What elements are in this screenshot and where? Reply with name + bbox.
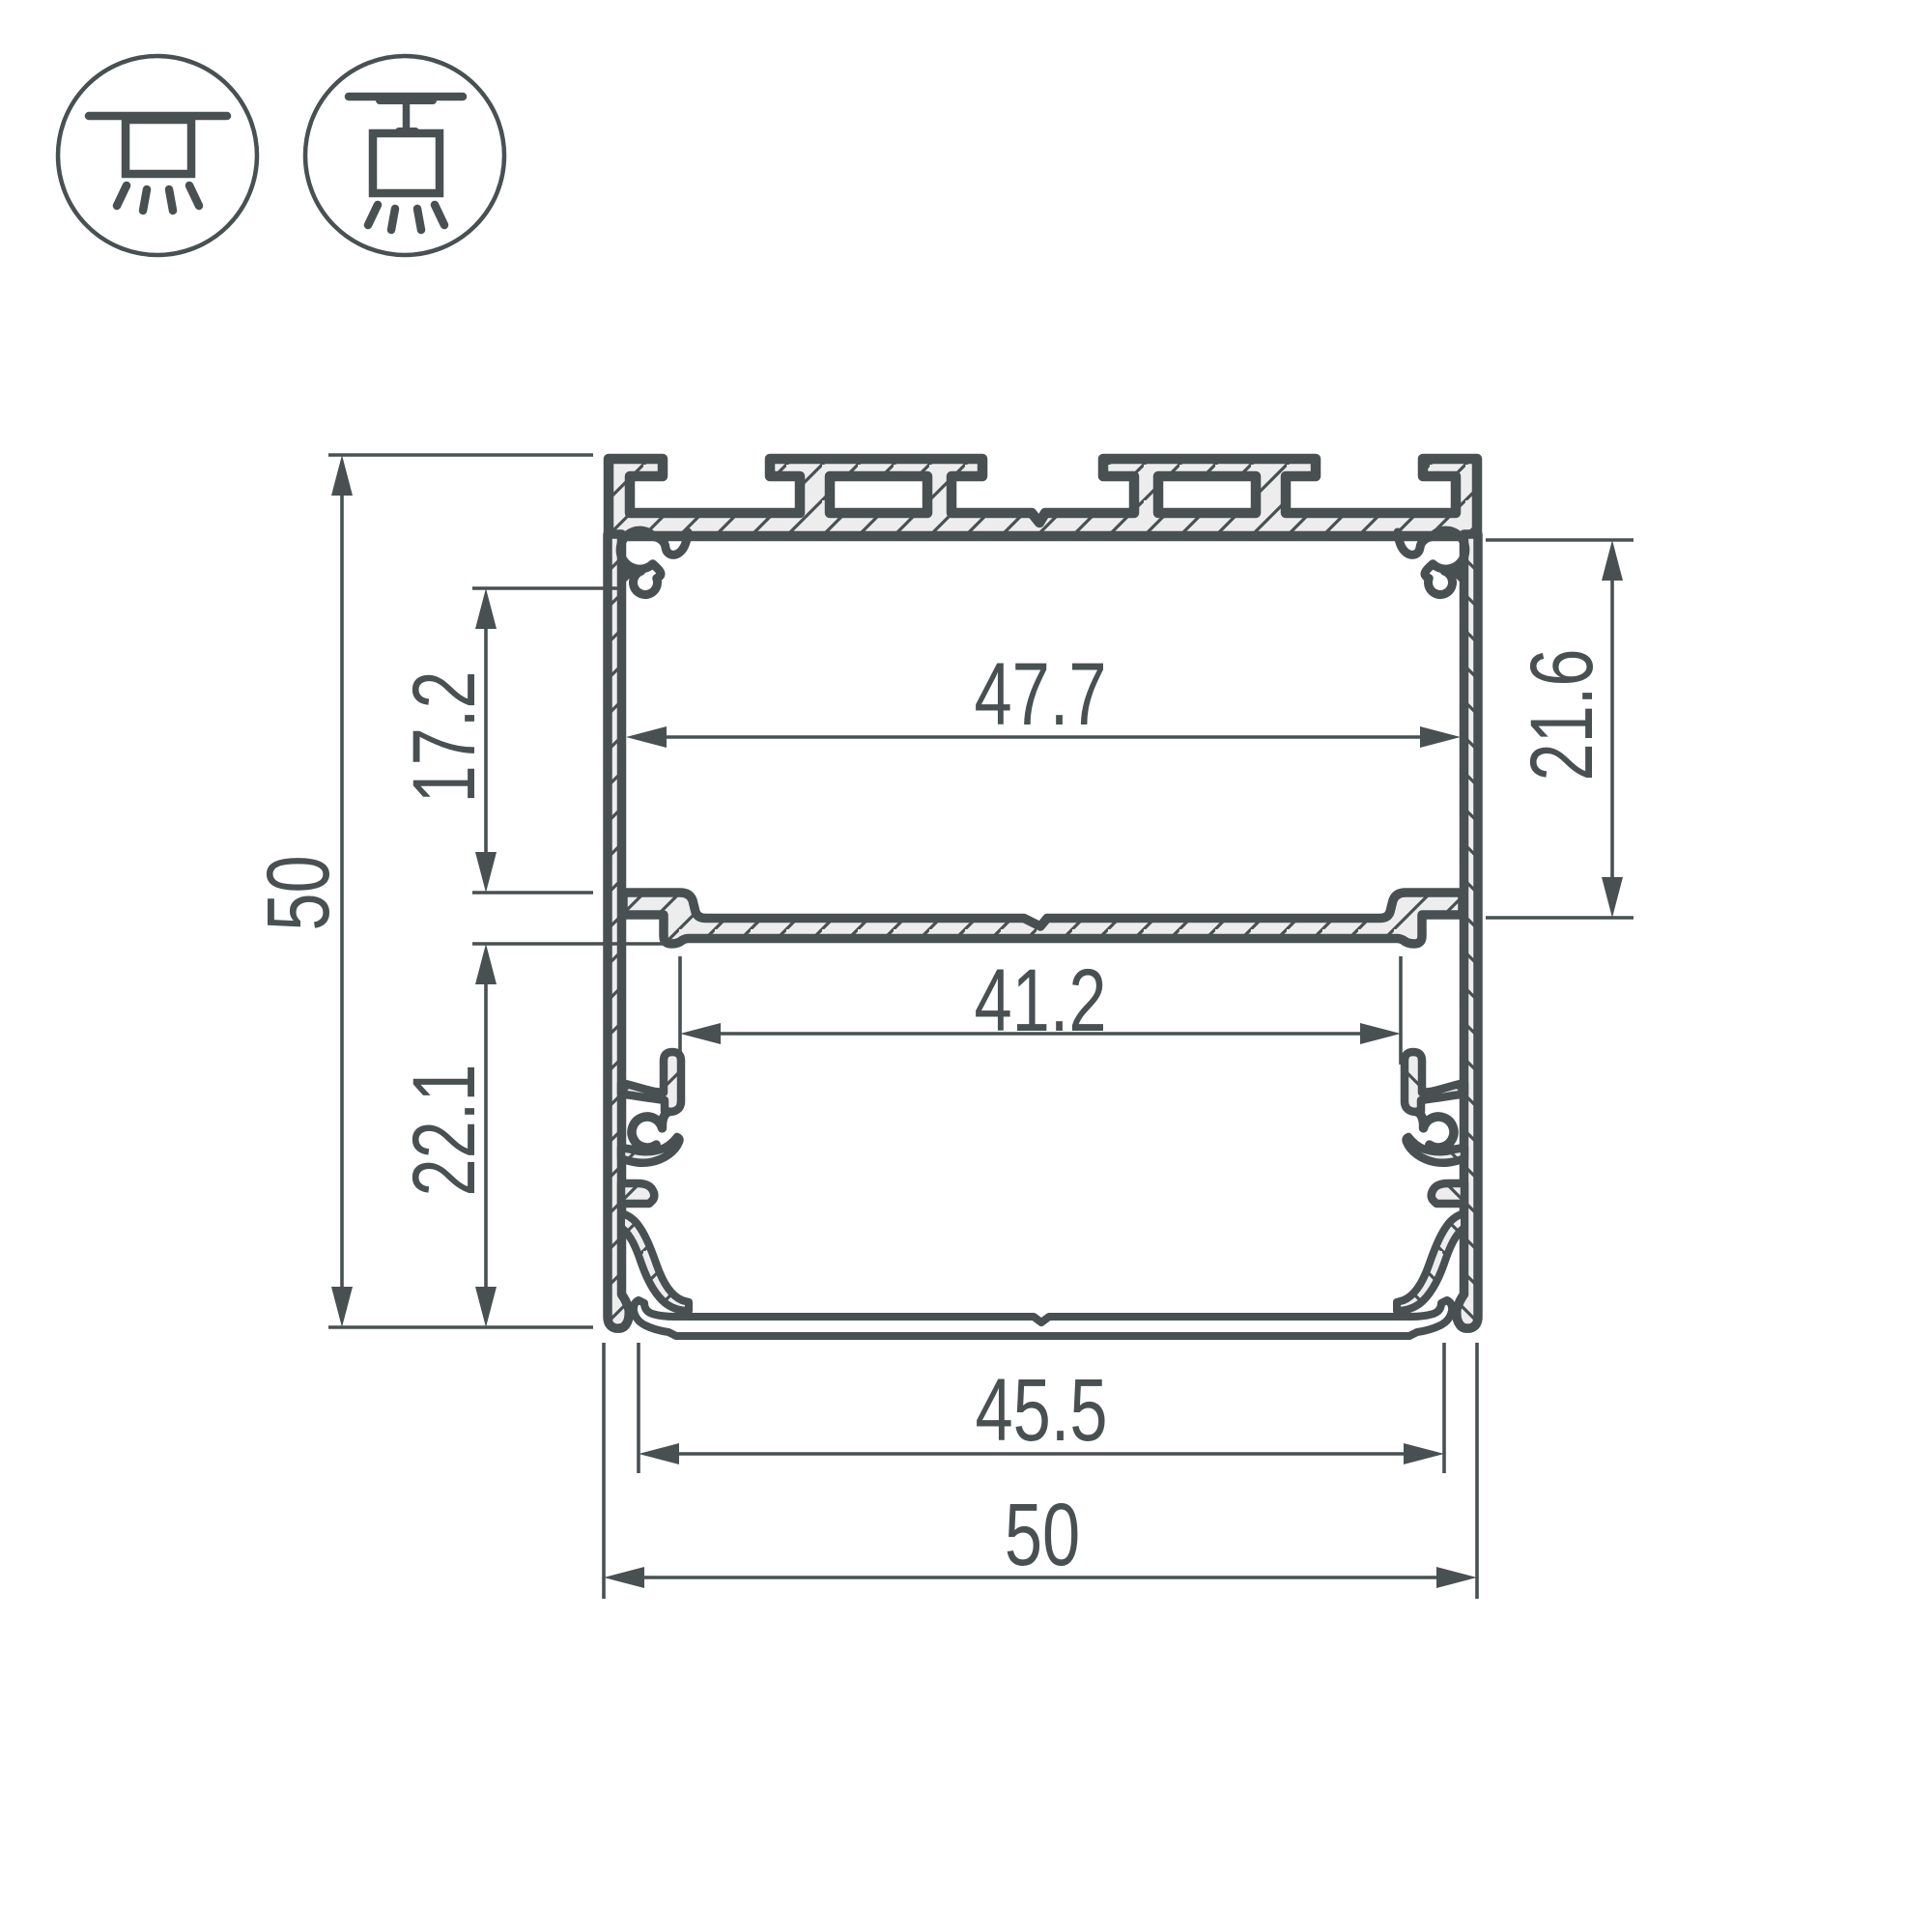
svg-text:50: 50 [249, 855, 348, 930]
svg-text:50: 50 [1005, 1486, 1080, 1584]
svg-text:45.5: 45.5 [976, 1361, 1108, 1460]
svg-text:47.7: 47.7 [975, 645, 1107, 744]
svg-text:17.2: 17.2 [395, 671, 494, 804]
svg-text:21.6: 21.6 [1513, 649, 1611, 781]
svg-text:41.2: 41.2 [975, 952, 1107, 1050]
svg-text:22.1: 22.1 [395, 1065, 494, 1197]
